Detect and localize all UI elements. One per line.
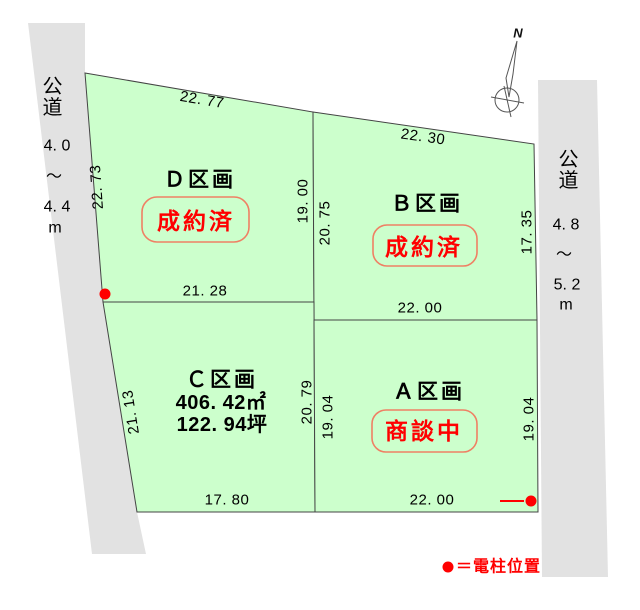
dim-d-bottom: 21. 28 xyxy=(183,283,228,300)
road-right-name-2: 道 xyxy=(559,169,580,192)
plot-c-area-m2: 406. 42㎡ xyxy=(176,390,267,414)
road-left-width-tilde: 〜 xyxy=(46,169,62,186)
dim-a-bottom: 22. 00 xyxy=(410,492,455,509)
road-left-width-min: 4. 0 xyxy=(44,138,71,155)
dim-a-right: 19. 04 xyxy=(521,397,538,442)
plot-a-name: Ａ区画 xyxy=(393,381,465,404)
dim-c-bottom: 17. 80 xyxy=(205,492,250,509)
land-plot-diagram: 22. 77 22. 30 22. 73 19. 00 20. 75 17. 3… xyxy=(0,0,640,610)
plot-c-name: Ｃ区画 xyxy=(186,369,258,392)
road-left-width-unit: m xyxy=(48,220,61,237)
dim-d-left: 22. 73 xyxy=(87,164,107,210)
dim-a-left: 19. 04 xyxy=(320,395,337,440)
road-right-width-unit: m xyxy=(559,297,572,314)
road-right-width-min: 4. 8 xyxy=(553,217,580,234)
compass: N xyxy=(491,26,524,118)
road-right-width-max: 5. 2 xyxy=(554,277,581,294)
utility-pole-dot-east xyxy=(526,496,537,507)
road-right-name-1: 公 xyxy=(559,149,580,171)
road-left-name-1: 公 xyxy=(43,76,64,98)
site-plan-canvas: 22. 77 22. 30 22. 73 19. 00 20. 75 17. 3… xyxy=(0,0,640,610)
road-left-width-max: 4. 4 xyxy=(44,199,71,216)
plot-b-status: 成約済 xyxy=(385,234,463,260)
dim-b-left: 20. 75 xyxy=(317,201,334,246)
plot-d-name: Ｄ区画 xyxy=(164,169,236,192)
plot-d-status: 成約済 xyxy=(157,208,235,234)
dim-b-right: 17. 35 xyxy=(519,210,536,255)
legend-pole-dot-icon xyxy=(443,562,454,573)
utility-pole-dot-west xyxy=(100,289,111,300)
dim-d-right: 19. 00 xyxy=(295,179,312,224)
road-right-width-tilde: 〜 xyxy=(556,247,572,264)
plot-c-area-tsubo: 122. 94坪 xyxy=(177,413,268,436)
dim-c-right: 20. 79 xyxy=(299,380,316,425)
legend: ＝電柱位置 xyxy=(443,557,542,576)
road-left-name-2: 道 xyxy=(43,96,64,119)
plot-b-name: Ｂ区画 xyxy=(391,193,463,216)
plot-a xyxy=(314,320,538,512)
compass-north-label: N xyxy=(513,26,523,41)
legend-label: ＝電柱位置 xyxy=(456,557,541,576)
plot-a-status: 商談中 xyxy=(385,418,463,444)
dim-b-bottom: 22. 00 xyxy=(398,300,443,317)
